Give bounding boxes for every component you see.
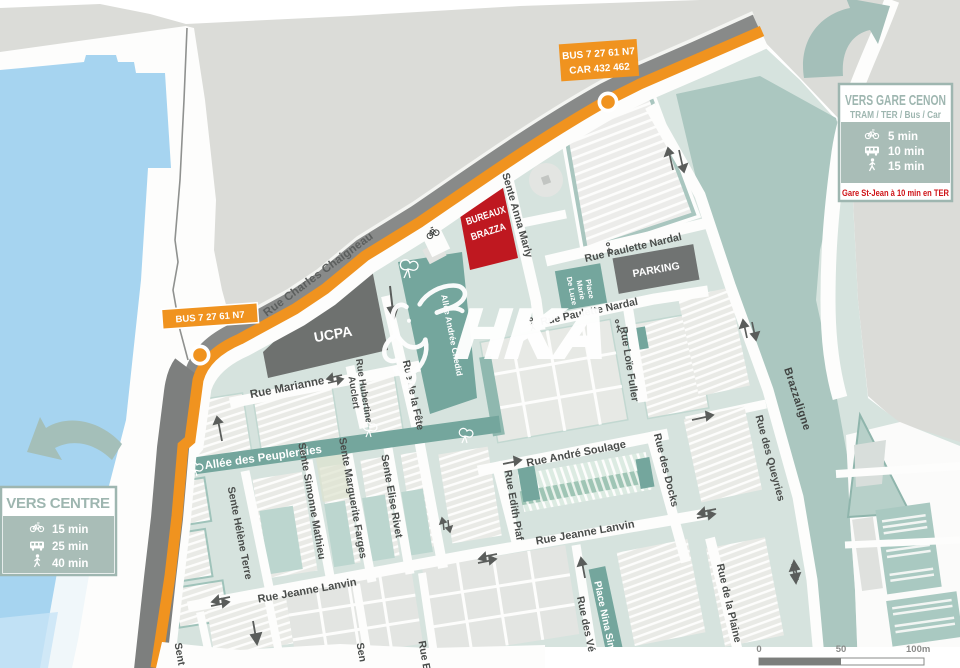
svg-text:TRAM / TER / Bus / Car: TRAM / TER / Bus / Car xyxy=(850,110,941,121)
svg-text:0: 0 xyxy=(756,644,761,655)
svg-text:25 min: 25 min xyxy=(52,541,88,553)
svg-text:VERS CENTRE: VERS CENTRE xyxy=(6,495,110,512)
svg-text:10 min: 10 min xyxy=(888,146,924,158)
svg-text:VERS GARE CENON: VERS GARE CENON xyxy=(845,93,946,109)
svg-text:Gare St-Jean à 10 min en TER: Gare St-Jean à 10 min en TER xyxy=(842,188,949,199)
svg-text:15 min: 15 min xyxy=(888,161,924,173)
svg-text:5 min: 5 min xyxy=(888,131,918,143)
svg-text:50: 50 xyxy=(836,644,847,655)
svg-text:100m: 100m xyxy=(906,644,930,655)
svg-text:15 min: 15 min xyxy=(52,524,88,536)
svg-text:40 min: 40 min xyxy=(52,558,88,570)
svg-text:HKA: HKA xyxy=(448,295,622,371)
